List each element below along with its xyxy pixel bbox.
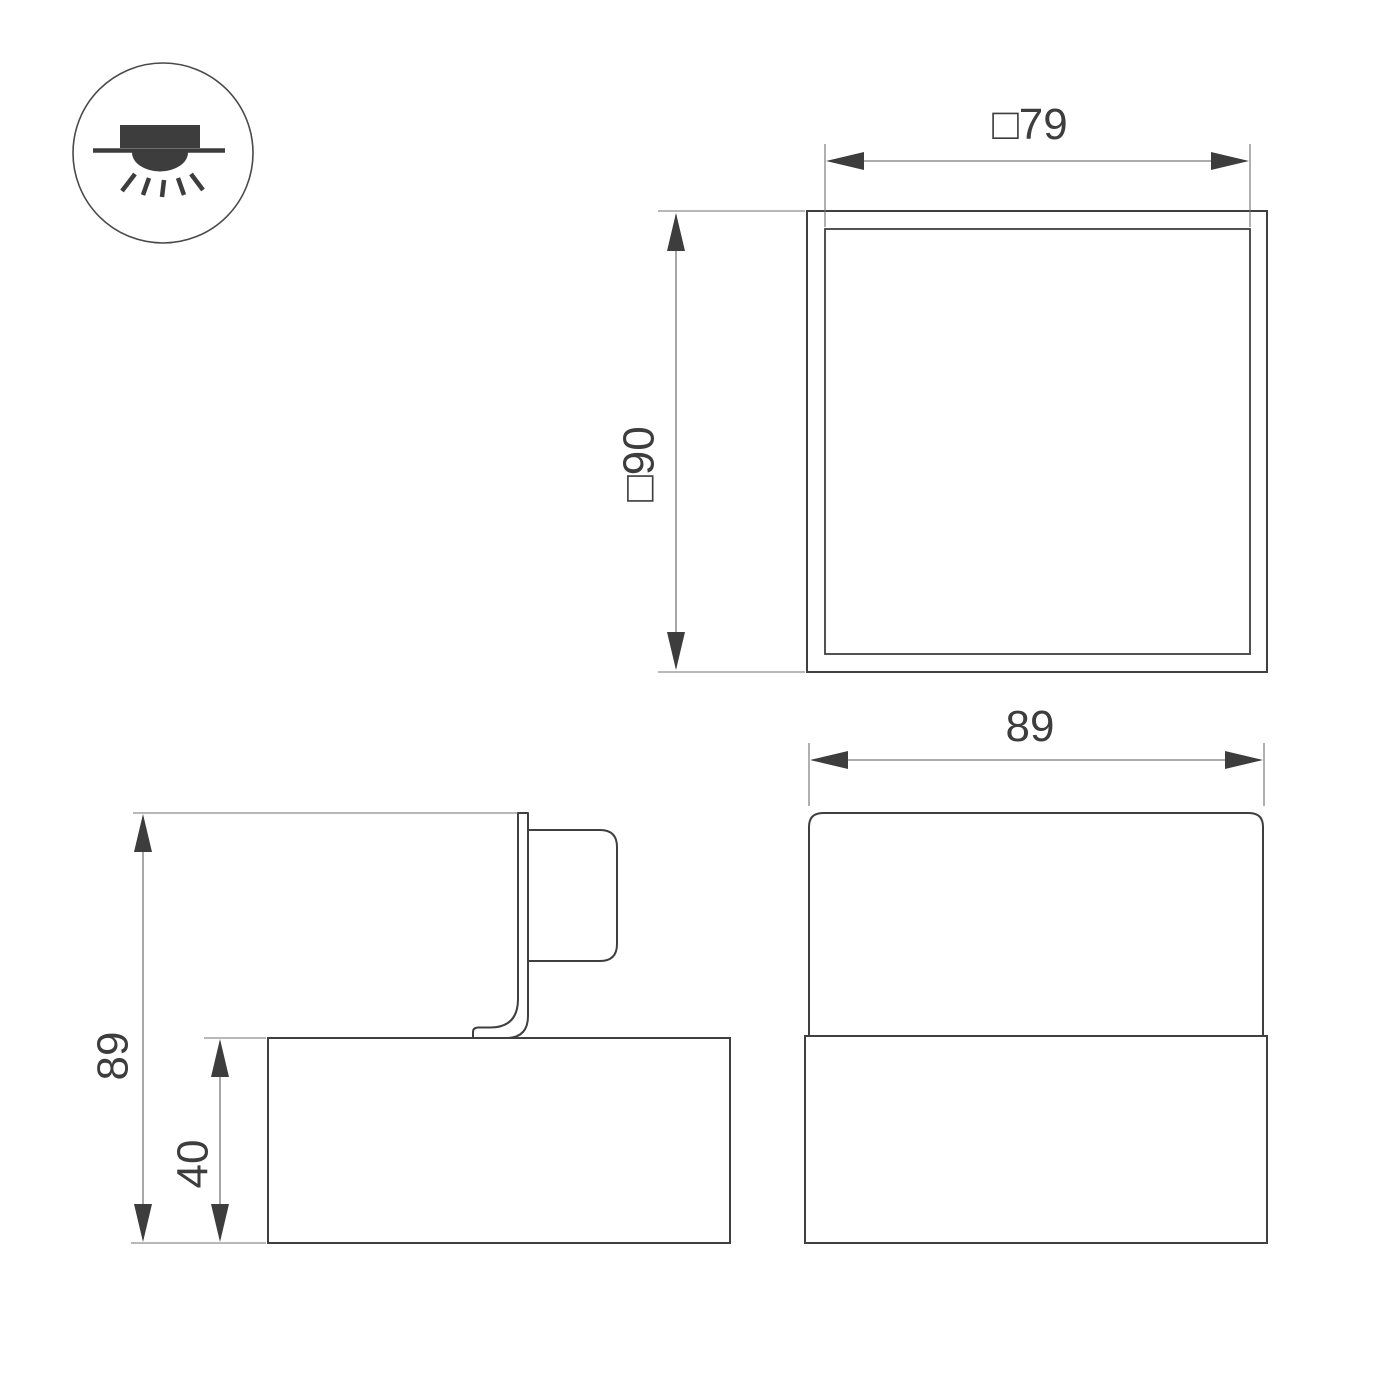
dimension-top-height: □90 [615, 211, 806, 672]
mount-type-icon [73, 63, 253, 243]
front-view-upper-body [809, 813, 1263, 1036]
top-view: □79 □90 [615, 100, 1268, 672]
arrowhead-left [810, 751, 848, 769]
dimension-label-top-height: □90 [615, 426, 664, 502]
top-view-inner-square [825, 229, 1250, 654]
side-view: 89 40 [89, 813, 731, 1243]
dimension-label-top-width: □79 [992, 100, 1068, 149]
dimension-label-base-height: 40 [169, 1140, 218, 1189]
arrowhead-up [134, 814, 152, 852]
arrowhead-down [211, 1204, 229, 1242]
fixture-body-icon [120, 125, 200, 148]
dimension-label-overall-height: 89 [89, 1032, 138, 1081]
drawing-canvas: □79 □90 89 40 [0, 0, 1400, 1400]
dimension-side-overall-height: 89 [89, 814, 153, 1242]
arrowhead-down [667, 632, 685, 670]
side-view-driver-box [528, 830, 617, 961]
dimension-drawing: □79 □90 89 40 [0, 0, 1400, 1400]
dimension-side-base-height: 40 [169, 1039, 230, 1242]
arrowhead-up [211, 1039, 229, 1077]
arrowhead-down [134, 1204, 152, 1242]
arrowhead-right [1211, 152, 1249, 170]
arrowhead-left [826, 152, 864, 170]
side-view-base-box [268, 1038, 730, 1243]
light-ray [162, 180, 164, 197]
dimension-label-front-width: 89 [1006, 702, 1055, 751]
dimension-front-width: 89 [809, 702, 1264, 806]
front-view-base-box [805, 1036, 1267, 1243]
front-view: 89 [805, 702, 1267, 1243]
dimension-top-width: □79 [825, 100, 1250, 227]
arrowhead-right [1225, 751, 1263, 769]
side-view-mounting-bracket [473, 813, 528, 1038]
arrowhead-up [667, 213, 685, 251]
